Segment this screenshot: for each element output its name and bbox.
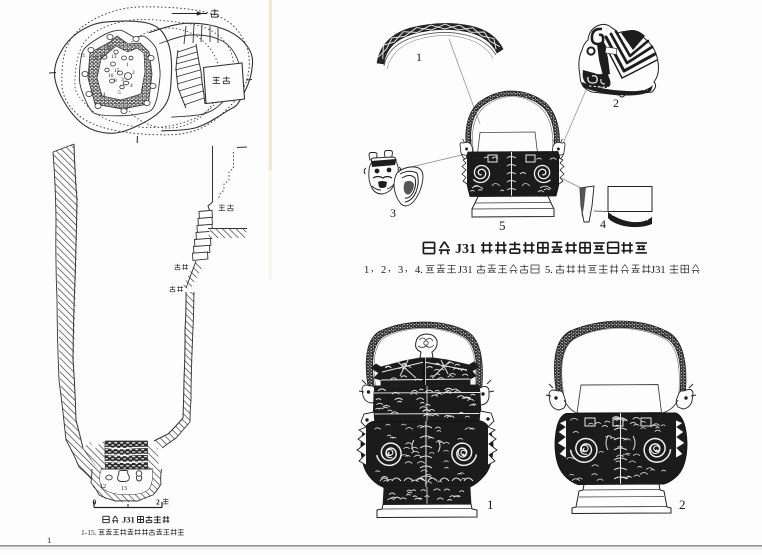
svg-text:1: 1 <box>364 265 369 276</box>
svg-text:1-15.: 1-15. <box>81 528 97 537</box>
svg-text:3: 3 <box>121 77 124 83</box>
svg-text:5: 5 <box>118 90 121 96</box>
svg-text:13: 13 <box>111 54 117 60</box>
svg-text:2: 2 <box>679 497 686 512</box>
svg-text:14: 14 <box>100 92 106 98</box>
svg-text:10: 10 <box>108 73 114 79</box>
svg-text:8: 8 <box>114 78 117 84</box>
svg-text:3: 3 <box>398 265 403 276</box>
svg-text:J31: J31 <box>455 242 476 257</box>
svg-text:,: , <box>405 263 408 274</box>
svg-text:4.: 4. <box>415 265 423 276</box>
svg-text:9: 9 <box>95 56 98 62</box>
svg-text:0: 0 <box>93 498 97 507</box>
svg-text:J31: J31 <box>651 265 666 276</box>
svg-text:J31: J31 <box>458 265 473 276</box>
svg-text:1: 1 <box>416 50 422 64</box>
svg-text:,: , <box>371 263 374 274</box>
svg-text:2: 2 <box>381 265 386 276</box>
svg-text:,: , <box>388 263 391 274</box>
svg-text:15: 15 <box>114 68 120 74</box>
svg-text:2: 2 <box>156 498 160 507</box>
svg-text:4: 4 <box>130 83 133 89</box>
svg-text:4: 4 <box>600 217 606 231</box>
svg-text:12: 12 <box>106 45 112 51</box>
svg-text:12: 12 <box>100 484 106 490</box>
svg-text:13: 13 <box>121 486 127 492</box>
svg-text:5.: 5. <box>545 265 553 276</box>
svg-text:5: 5 <box>499 218 506 233</box>
svg-text:1: 1 <box>126 62 129 68</box>
svg-text:J31: J31 <box>122 515 135 525</box>
svg-text:3: 3 <box>390 206 396 220</box>
svg-text:1: 1 <box>487 497 494 512</box>
svg-text:2: 2 <box>613 96 619 110</box>
svg-text:11: 11 <box>80 53 86 59</box>
svg-text:1: 1 <box>47 535 51 545</box>
svg-text:2: 2 <box>132 70 135 76</box>
